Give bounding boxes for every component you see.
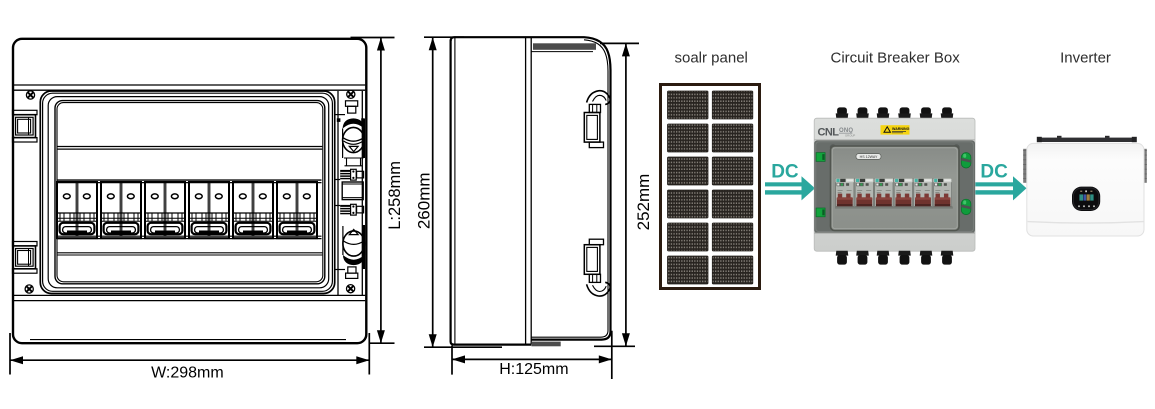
svg-text:DC: DC (980, 161, 1008, 182)
svg-text:W:298mm: W:298mm (151, 365, 224, 382)
svg-text:GROUP: GROUP (845, 133, 855, 137)
svg-text:DC: DC (771, 161, 799, 182)
svg-text:Circuit Breaker Box: Circuit Breaker Box (830, 49, 960, 66)
svg-text:HS 12WAY: HS 12WAY (860, 155, 878, 159)
svg-text:soalr panel: soalr panel (675, 49, 748, 66)
svg-text:H:125mm: H:125mm (499, 361, 568, 378)
svg-text:Inverter: Inverter (1060, 49, 1111, 66)
svg-text:L:258mm: L:258mm (386, 161, 404, 230)
svg-text:252mm: 252mm (634, 174, 653, 231)
svg-text:WARNING: WARNING (892, 127, 910, 131)
svg-text:CNL: CNL (818, 127, 840, 139)
svg-text:260mm: 260mm (415, 172, 434, 229)
